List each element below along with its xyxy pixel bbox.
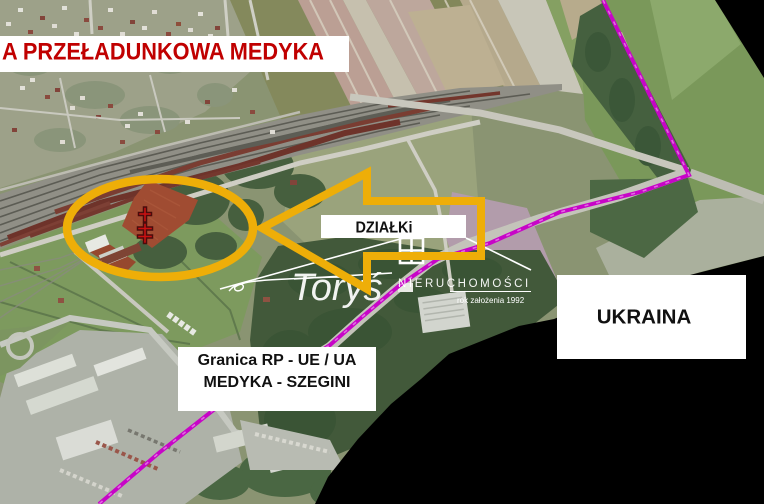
svg-text:A PRZEŁADUNKOWA MEDYKA: A PRZEŁADUNKOWA MEDYKA [2,39,324,66]
svg-text:Granica RP - UE / UA: Granica RP - UE / UA [198,352,357,369]
svg-text:MEDYKA - SZEGINI: MEDYKA - SZEGINI [204,374,351,391]
svg-text:NIERUCHOMOŚCI: NIERUCHOMOŚCI [398,277,531,290]
svg-text:UKRAINA: UKRAINA [597,306,692,329]
svg-text:DZIAŁKi: DZIAŁKi [356,220,413,237]
svg-text:rok założenia 1992: rok założenia 1992 [457,296,525,305]
